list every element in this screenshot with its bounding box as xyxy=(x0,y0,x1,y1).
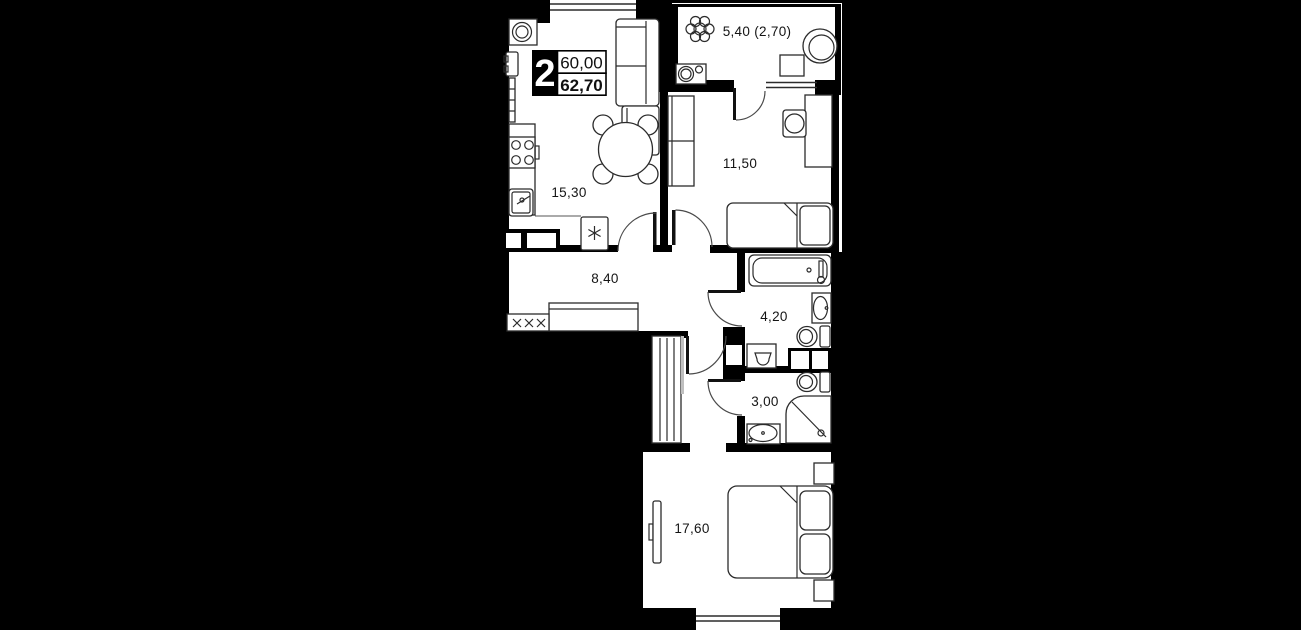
bath-sink xyxy=(812,293,831,323)
kitchen-door-leaf xyxy=(653,212,657,245)
dining-table xyxy=(599,123,653,177)
corridor xyxy=(652,336,684,443)
double-bed xyxy=(728,486,833,578)
pillow xyxy=(800,206,830,245)
single-bed xyxy=(727,203,833,248)
bathroom-area-label: 4,20 xyxy=(760,309,787,324)
badge-room-count: 2 xyxy=(534,53,555,95)
hall-wardrobe xyxy=(549,303,638,331)
floorplan-canvas: 15,30 2 60,00 62,70 5,4 xyxy=(0,0,1301,630)
desk-chair xyxy=(783,110,806,137)
badge-area-total: 60,00 xyxy=(560,54,603,73)
wardrobe xyxy=(668,96,694,186)
kitchen-shaft-1 xyxy=(506,233,521,248)
kitchen-area-label: 15,30 xyxy=(551,185,586,200)
bath-shaft-2 xyxy=(812,351,828,369)
nightstand xyxy=(814,463,834,484)
kitchen-window-bay xyxy=(548,0,640,18)
balcony-area-label: 5,40 (2,70) xyxy=(723,24,792,39)
toilet-door-leaf xyxy=(708,379,741,382)
bedroom1-door-leaf xyxy=(672,210,676,245)
toilet xyxy=(797,326,830,347)
dining-set xyxy=(593,115,658,184)
toilet-area-label: 3,00 xyxy=(751,394,778,409)
wardrobe-edge xyxy=(681,336,684,394)
bathtub xyxy=(749,255,831,286)
nightstand xyxy=(814,580,834,601)
toilet-sink xyxy=(747,424,780,444)
bath-shaft-1 xyxy=(791,351,809,369)
bathroom-door-leaf xyxy=(708,290,741,293)
badge-area-full: 62,70 xyxy=(560,76,603,95)
desk xyxy=(805,95,832,167)
area-badge: 2 60,00 62,70 xyxy=(532,50,606,96)
shower xyxy=(786,396,831,443)
balcony-door-leaf xyxy=(733,88,736,120)
round-chair xyxy=(803,29,837,63)
washing-machine xyxy=(747,344,776,368)
corridor-wardrobe xyxy=(652,336,684,443)
bath-niche-shaft xyxy=(726,345,742,365)
kitchen-shaft-2 xyxy=(527,233,556,248)
bedroom2-window-bay xyxy=(693,610,783,630)
shoe-rack xyxy=(507,314,549,331)
bedroom2-area-label: 17,60 xyxy=(674,521,709,536)
pillow xyxy=(800,534,830,574)
hallway-area-label: 8,40 xyxy=(591,271,618,286)
bedroom1-area-label: 11,50 xyxy=(723,156,757,171)
ac-unit xyxy=(676,64,706,84)
corridor-door-leaf xyxy=(686,336,689,374)
toilet-2 xyxy=(797,372,830,392)
floorplan-svg: 15,30 2 60,00 62,70 5,4 xyxy=(0,0,1301,630)
pillow xyxy=(800,491,830,530)
balcony-table xyxy=(780,55,804,76)
